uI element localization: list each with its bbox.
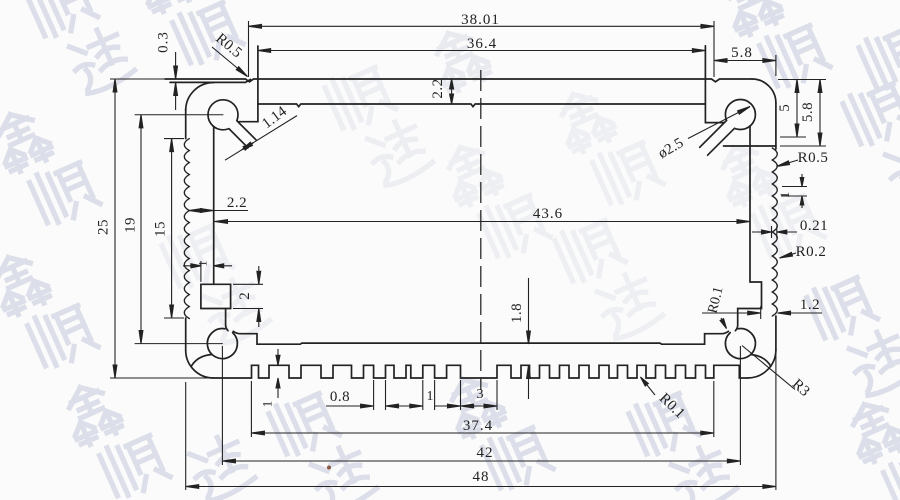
svg-text:0.3: 0.3 — [156, 31, 172, 53]
svg-text:0.8: 0.8 — [330, 389, 350, 405]
svg-text:1: 1 — [260, 401, 275, 408]
svg-text:42: 42 — [477, 445, 494, 461]
svg-text:2: 2 — [237, 292, 253, 300]
svg-text:38.01: 38.01 — [461, 12, 500, 28]
svg-text:1.2: 1.2 — [800, 297, 820, 313]
svg-text:36.4: 36.4 — [467, 36, 497, 52]
svg-text:37.4: 37.4 — [463, 418, 493, 434]
svg-text:2.2: 2.2 — [430, 78, 446, 98]
svg-text:19: 19 — [123, 217, 139, 233]
svg-text:48: 48 — [473, 469, 490, 485]
svg-text:1: 1 — [777, 192, 792, 199]
svg-text:5.8: 5.8 — [800, 102, 816, 122]
svg-text:15: 15 — [153, 221, 169, 237]
svg-text:5: 5 — [777, 104, 793, 112]
svg-text:1: 1 — [427, 389, 434, 404]
svg-text:0.21: 0.21 — [800, 218, 828, 234]
svg-text:25: 25 — [96, 219, 112, 235]
svg-text:5.8: 5.8 — [731, 45, 753, 61]
svg-text:R0.5: R0.5 — [798, 150, 829, 166]
svg-text:R0.2: R0.2 — [796, 244, 827, 260]
svg-text:2.2: 2.2 — [227, 195, 247, 211]
svg-text:3: 3 — [477, 387, 484, 402]
svg-text:1: 1 — [196, 261, 210, 267]
svg-text:1.8: 1.8 — [509, 303, 525, 323]
svg-text:43.6: 43.6 — [533, 206, 563, 222]
